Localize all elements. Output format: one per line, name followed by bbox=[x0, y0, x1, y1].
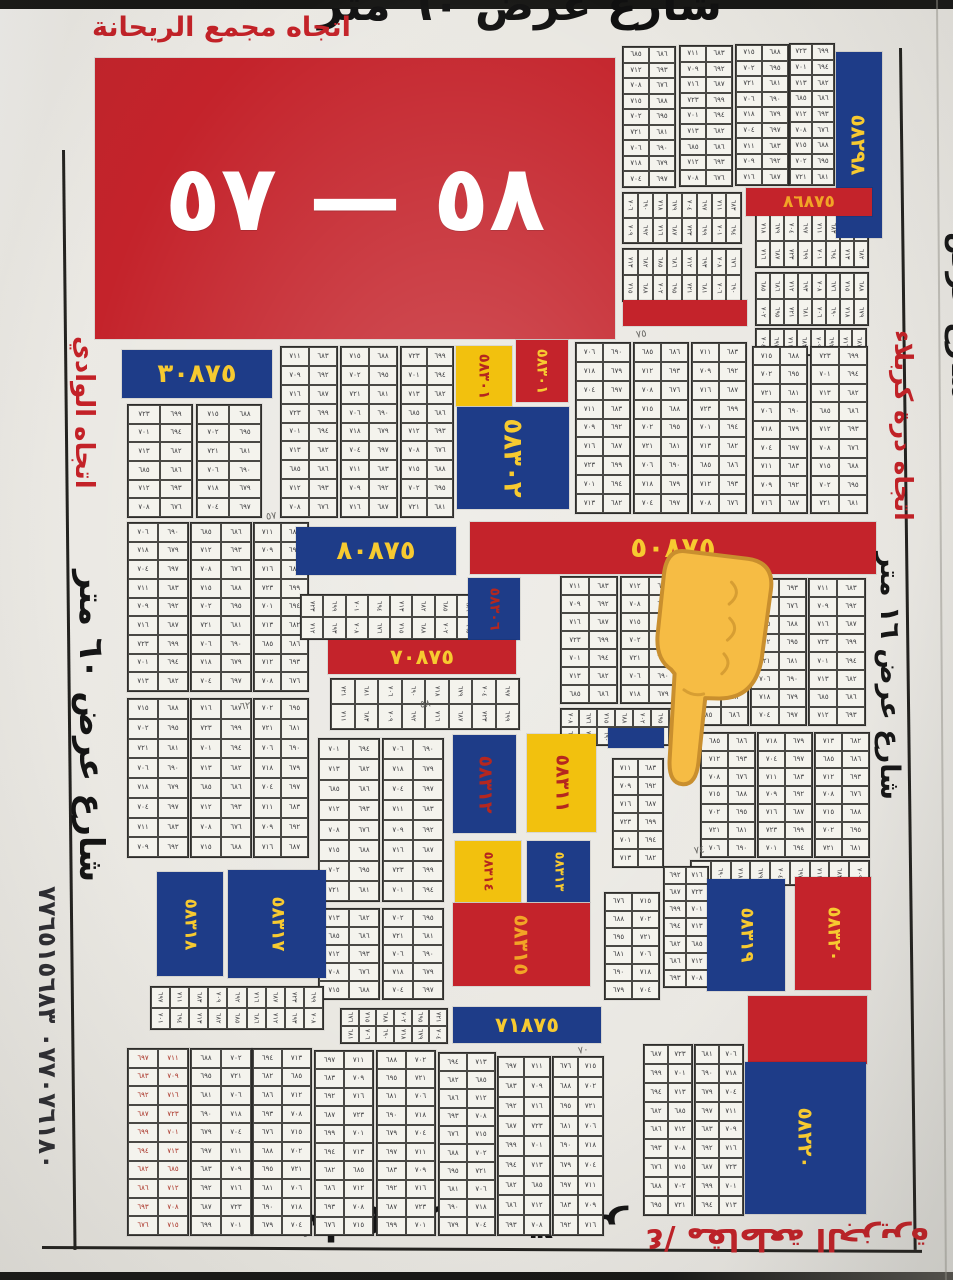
street-number-strip: ٣٠٨٧٥ bbox=[122, 350, 272, 398]
plot-cell: ٦٧٩ bbox=[553, 1156, 578, 1176]
plot-cell: ٦٩٠ bbox=[281, 739, 308, 759]
plot-cell: ٦٩٥ bbox=[439, 1162, 467, 1180]
plot-cell: ٦٧٩ bbox=[854, 299, 868, 325]
plot-cell: ٦٨٦ bbox=[839, 402, 867, 420]
plot-cell: ٦٧٩ bbox=[191, 1123, 221, 1142]
plot-cell: ٦٩٧ bbox=[649, 171, 675, 187]
plot-cell: ٦٧٩ bbox=[158, 542, 188, 561]
plot-cell: ٦٧٩ bbox=[785, 733, 812, 751]
plot-cell: ٧١٦ bbox=[561, 613, 589, 631]
plot-cell: ٧١٥ bbox=[341, 347, 369, 366]
plot-grid: ٧١٦٦٨٧٧٢٣٦٩٩٧٠١٦٩٤٧١٣٦٨٢٦٨٥٦٨٦٧١٢٦٩٣٧٠٨٦… bbox=[190, 698, 252, 858]
plot-cell: ٧١٥ bbox=[282, 1123, 311, 1142]
plot-cell: ٦٨٥ bbox=[319, 780, 349, 800]
photo-bottom-edge bbox=[0, 1272, 953, 1280]
plot-grid: ٧١١٦٨٣٧٠٩٦٩٢٧١٦٦٨٧٧٢٣٦٩٩٧٠١٦٩٤٧١٣٦٨٢٦٨٥٦… bbox=[808, 578, 866, 726]
plot-cell: ٧٠١ bbox=[576, 475, 603, 494]
plot-cell: ٧٠٢ bbox=[668, 1177, 692, 1196]
plot-cell: ٦٨٧ bbox=[266, 987, 285, 1008]
plot-cell: ٦٩٣ bbox=[427, 423, 453, 442]
plot-cell: ٦٨٧ bbox=[413, 840, 443, 860]
plot-cell: ٧٢١ bbox=[578, 1097, 603, 1117]
plot-cell: ٦٨٣ bbox=[158, 579, 188, 598]
plot-cell: ٧١٨ bbox=[576, 362, 603, 381]
plot-cell: ٦٨١ bbox=[661, 437, 688, 456]
plot-cell: ٦٩٧ bbox=[229, 498, 261, 517]
plot-cell: ٦٩٣ bbox=[160, 480, 192, 499]
plot-grid: ٦٧٦٧١٥٦٨٨٧٠٢٦٩٥٧٢١٦٨١٧٠٦٦٩٠٧١٨٦٧٩٧٠٤ bbox=[604, 892, 660, 1000]
plot-cell: ٦٨٨ bbox=[780, 347, 807, 365]
plot-cell: ٧١٣ bbox=[668, 1083, 692, 1102]
plot-cell: ٧٠٦ bbox=[406, 1088, 435, 1106]
plot-cell: ٧٠٩ bbox=[736, 154, 762, 170]
plot-cell: ٦٨١ bbox=[427, 498, 453, 517]
plot-cell: ٧١٥ bbox=[632, 893, 659, 911]
plot-cell: ٦٨٨ bbox=[253, 1142, 282, 1161]
plot-cell: ٧٢١ bbox=[467, 1162, 495, 1180]
plot-cell: ٦٩٣ bbox=[221, 798, 251, 818]
block-number-label: ٥٨٣١٣ bbox=[552, 852, 565, 892]
plot-cell: ٧٠١ bbox=[191, 739, 221, 759]
plot-cell: ٧١٣ bbox=[809, 670, 837, 688]
plot-cell: ٧١٥ bbox=[191, 579, 221, 598]
block-number-plate: ٥٨٣٠٦ bbox=[468, 578, 520, 640]
plot-cell: ٦٨٨ bbox=[427, 460, 453, 479]
plot-cell: ٧٠١ bbox=[790, 60, 812, 76]
plot-cell: ٧١٨ bbox=[753, 421, 780, 439]
plot-cell: ٧١٦ bbox=[191, 699, 221, 719]
plot-cell: ٦٨٢ bbox=[439, 1071, 467, 1089]
plot-cell: ٦٨١ bbox=[649, 125, 675, 141]
plot-cell: ٦٩٢ bbox=[377, 1180, 406, 1198]
plot-cell: ٧١٥ bbox=[344, 1217, 373, 1235]
plot-cell: ٦٩٠ bbox=[253, 1198, 282, 1217]
plot-cell: ٧١٦ bbox=[578, 1215, 603, 1235]
plot-cell: ٧٠٤ bbox=[282, 1216, 311, 1235]
plot-cell: ٧١٢ bbox=[623, 63, 649, 79]
plot-cell: ٦٩٥ bbox=[281, 699, 308, 719]
plot-cell: ٦٨٦ bbox=[812, 91, 834, 107]
plot-cell: ٦٩٤ bbox=[719, 419, 746, 438]
plot-cell: ٧٠٢ bbox=[634, 419, 661, 438]
plot-cell: ٦٧٦ bbox=[315, 1217, 344, 1235]
plot-cell: ٦٩٥ bbox=[349, 861, 379, 881]
plot-cell: ٧١٦ bbox=[524, 1097, 550, 1117]
plot-cell: ٧١٢ bbox=[281, 479, 309, 498]
plot-grid: ٧١٣٦٨٢٦٨٥٦٨٦٧١٢٦٩٣٧٠٨٦٧٦٧١٥٦٨٨٧٠٢٦٩٥٧٢١٦… bbox=[814, 732, 870, 858]
plot-cell: ٦٩٤ bbox=[160, 424, 192, 443]
block-number-label: ٥٨٣٠١ bbox=[535, 348, 550, 394]
plot-cell: ٦٨٦ bbox=[221, 778, 251, 798]
plot-cell: ٦٨٢ bbox=[603, 494, 630, 513]
plot-cell: ٦٨٧ bbox=[589, 613, 617, 631]
plot-cell: ٧٠٢ bbox=[653, 275, 668, 301]
plot-cell: ٦٩٣ bbox=[349, 945, 379, 963]
plot-grid: ٦٨٨٧٠٢٦٩٥٧٢١٦٨١٧٠٦٦٩٠٧١٨٦٧٩٧٠٤٦٩٧٧١١٦٨٣٧… bbox=[376, 1050, 436, 1236]
plot-cell: ٦٩٧ bbox=[151, 987, 170, 1008]
plot-cell: ٦٨٢ bbox=[638, 249, 653, 275]
plot-cell: ٧٢٣ bbox=[301, 595, 323, 617]
plot-cell: ٦٨٣ bbox=[315, 1069, 344, 1087]
colored-bar bbox=[748, 996, 867, 1064]
plot-cell: ٦٨٣ bbox=[785, 768, 812, 786]
plot-cell: ٧٢٣ bbox=[254, 579, 281, 598]
plot-cell: ٦٧٦ bbox=[826, 273, 840, 299]
plot-cell: ٦٩٤ bbox=[368, 595, 390, 617]
plot-cell: ٧٠٩ bbox=[128, 598, 158, 617]
plot-cell: ٧١٣ bbox=[467, 1053, 495, 1071]
plot-cell: ٧٠٨ bbox=[282, 1105, 311, 1124]
plot-cell: ٦٩٧ bbox=[780, 439, 807, 457]
plot-cell: ٧١٥ bbox=[319, 840, 349, 860]
plot-cell: ٦٩٩ bbox=[839, 347, 867, 365]
plot-cell: ٦٩٧ bbox=[158, 560, 188, 579]
plot-cell: ٦٩٥ bbox=[842, 822, 869, 840]
plot-cell: ٦٨٥ bbox=[344, 1161, 373, 1179]
plot-grid: ٦٩٧٧١١٦٨٣٧٠٩٦٩٢٧١٦٦٨٧٧٢٣٦٩٩٧٠١٦٩٤٧١٣٦٨٢٦… bbox=[497, 1056, 551, 1236]
plot-cell: ٧٠٤ bbox=[191, 672, 221, 691]
plot-cell: ٧٠٤ bbox=[221, 1123, 251, 1142]
plot-cell: ٧٠١ bbox=[383, 881, 413, 901]
plot-cell: ٧١٦ bbox=[158, 1086, 188, 1105]
phone-number: ٠٧٧٠٧٦١٨٠ ٧٧٦٥١٥٦٨٣ bbox=[35, 886, 60, 1169]
plot-cell: ٦٩٥ bbox=[667, 275, 682, 301]
plot-cell: ٦٧٩ bbox=[377, 1125, 406, 1143]
handwritten-mark: ٧٤ bbox=[693, 845, 705, 856]
plot-cell: ٧٠٤ bbox=[784, 215, 798, 241]
plot-cell: ٧١١ bbox=[344, 1051, 373, 1069]
plot-cell: ٦٩٤ bbox=[726, 218, 741, 243]
plot-cell: ٧٠١ bbox=[346, 595, 368, 617]
plot-cell: ٦٨٢ bbox=[160, 442, 192, 461]
plot-cell: ٧٠٨ bbox=[344, 1198, 373, 1216]
plot-cell: ٧٠٤ bbox=[341, 441, 369, 460]
plot-cell: ٦٨٧ bbox=[644, 1045, 668, 1064]
plot-cell: ٦٨٧ bbox=[664, 884, 686, 901]
plot-cell: ٦٧٦ bbox=[842, 786, 869, 804]
plot-cell: ٦٨٧ bbox=[762, 169, 788, 185]
block-number-plate: ٥٨٣٠١ bbox=[516, 340, 568, 402]
plot-cell: ٧٠١ bbox=[613, 831, 638, 849]
plot-cell: ٦٨٨ bbox=[369, 347, 397, 366]
plot-cell: ٦٧٦ bbox=[281, 672, 308, 691]
plot-cell: ٦٨٦ bbox=[661, 343, 688, 362]
plot-cell: ٦٨١ bbox=[439, 1180, 467, 1198]
plot-cell: ٧١١ bbox=[524, 1057, 550, 1077]
plot-cell: ٧٠٤ bbox=[429, 1026, 447, 1043]
plot-cell: ٧٠٩ bbox=[524, 1077, 550, 1097]
plot-cell: ٦٩٥ bbox=[229, 424, 261, 443]
plot-cell: ٧١١ bbox=[576, 400, 603, 419]
plot-cell: ٦٨٥ bbox=[811, 402, 839, 420]
plot-cell: ٦٧٦ bbox=[726, 249, 741, 275]
plot-grid: ٦٩٢٧١٦٦٨٧٧٢٣٦٩٩٧٠١٦٩٤٧١٣٦٨٢٦٨٥٦٨٦٧١٢٦٩٣٧… bbox=[663, 866, 709, 988]
plot-cell: ٦٨٨ bbox=[649, 94, 675, 110]
plot-grid: ٦٩٧٧١١٦٨٣٧٠٩٦٩٢٧١٦٦٨٧٧٢٣٦٩٩٧٠١٦٩٤٧١٣٦٨٢٦… bbox=[314, 1050, 374, 1236]
plot-cell: ٧٠٦ bbox=[383, 945, 413, 963]
plot-cell: ٦٩٣ bbox=[839, 421, 867, 439]
plot-cell: ٦٨٣ bbox=[309, 347, 337, 366]
plot-grid: ٧١١٦٨٣٧٠٩٦٩٢٧١٦٦٨٧٧٢٣٦٩٩٧٠١٦٩٤٧١٣٦٨٢٦٨٥٦… bbox=[679, 45, 733, 187]
plot-cell: ٧٢٣ bbox=[668, 1045, 692, 1064]
plot-cell: ٧٠٦ bbox=[576, 343, 603, 362]
plot-cell: ٧١٥ bbox=[668, 1158, 692, 1177]
plot-cell: ٦٨٦ bbox=[128, 1179, 158, 1198]
plot-cell: ٧٠٨ bbox=[686, 970, 708, 987]
plot-cell: ٧١٥ bbox=[623, 94, 649, 110]
plot-cell: ٧١١ bbox=[331, 704, 355, 729]
plot-cell: ٧٠٤ bbox=[682, 193, 697, 218]
plot-cell: ٧٠١ bbox=[758, 839, 785, 857]
plot-cell: ٦٩٤ bbox=[439, 1053, 467, 1071]
plot-cell: ٧١٨ bbox=[653, 193, 668, 218]
plot-cell: ٦٩٧ bbox=[281, 778, 308, 798]
plot-cell: ٧٠٨ bbox=[158, 1198, 188, 1217]
plot-cell: ٦٩٥ bbox=[770, 299, 784, 325]
plot-cell: ٦٩٧ bbox=[413, 780, 443, 800]
plot-cell: ٧٠٩ bbox=[281, 366, 309, 385]
plot-cell: ٧١٨ bbox=[341, 423, 369, 442]
plot-cell: ٦٨٢ bbox=[349, 909, 379, 927]
plot-cell: ٧٠٤ bbox=[578, 1156, 603, 1176]
block-number-plate: ٥٨٣١٤ bbox=[455, 841, 521, 902]
plot-cell: ٧٢١ bbox=[736, 76, 762, 92]
plot-cell: ٧٠٨ bbox=[281, 498, 309, 517]
plot-cell: ٦٧٩ bbox=[780, 421, 807, 439]
plot-cell: ٧٢٣ bbox=[344, 1106, 373, 1124]
plot-cell: ٧٢٣ bbox=[406, 1198, 435, 1216]
plot-cell: ٦٨٦ bbox=[349, 927, 379, 945]
plot-cell: ٧١٨ bbox=[128, 542, 158, 561]
plot-cell: ٦٨٣ bbox=[369, 460, 397, 479]
plot-cell: ٧٢٣ bbox=[401, 347, 427, 366]
plot-cell: ٦٨٥ bbox=[435, 595, 457, 617]
plot-cell: ٦٩٧ bbox=[785, 751, 812, 769]
plot-cell: ٧١١ bbox=[383, 800, 413, 820]
plot-cell: ٦٨٥ bbox=[191, 523, 221, 542]
plot-cell: ٧١١ bbox=[561, 577, 589, 595]
handwritten-mark: ٦٢ bbox=[239, 701, 251, 712]
plot-cell: ٦٨٨ bbox=[661, 400, 688, 419]
plot-cell: ٧٢٣ bbox=[613, 813, 638, 831]
plot-cell: ٧٠٨ bbox=[191, 560, 221, 579]
plot-cell: ٧٠٦ bbox=[736, 92, 762, 108]
plot-cell: ٦٩٧ bbox=[697, 193, 712, 218]
plot-cell: ٦٩٣ bbox=[323, 617, 345, 639]
plot-grid: ٦٩٧٧١١٦٨٣٧٠٩٦٩٢٧١٦٦٨٧٧٢٣٦٩٩٧٠١٦٩٤٧١٣٦٨٢٦… bbox=[127, 1048, 189, 1236]
plot-cell: ٦٨١ bbox=[355, 679, 379, 704]
block-number-label: ٥٨٣٢٠ bbox=[824, 906, 842, 961]
plot-cell: ٧١٢ bbox=[784, 273, 798, 299]
plot-cell: ٧٠٦ bbox=[634, 456, 661, 475]
plot-cell: ٦٨٨ bbox=[349, 981, 379, 999]
plot-cell: ٧٠١ bbox=[712, 218, 727, 243]
plot-cell: ٧٢١ bbox=[341, 385, 369, 404]
plot-grid: ٧٠٢٦٩٥٧٢١٦٨١٧٠٦٦٩٠٧١٨٦٧٩٧٠٤٦٩٧ bbox=[382, 908, 444, 1000]
plot-grid: ٦٨٥٦٨٦٧١٢٦٩٣٧٠٨٦٧٦٧١٥٦٨٨٧٠٢٦٩٥٧٢١٦٨١٧٠٦٦… bbox=[622, 46, 676, 188]
plot-cell: ٧٠١ bbox=[809, 652, 837, 670]
plot-cell: ٧١٨ bbox=[394, 1026, 412, 1043]
plot-cell: ٧٠٢ bbox=[191, 598, 221, 617]
plot-cell: ٦٩٥ bbox=[728, 804, 755, 822]
plot-cell: ٦٨١ bbox=[221, 616, 251, 635]
plot-cell: ٦٧٦ bbox=[649, 78, 675, 94]
plot-cell: ٧١٣ bbox=[282, 1049, 311, 1068]
direction-label-durrat-karbala: اتجاه درة كربلاء bbox=[891, 330, 916, 521]
plot-cell: ٦٨٣ bbox=[719, 343, 746, 362]
plot-cell: ٦٩٣ bbox=[837, 707, 865, 725]
plot-cell: ٧١١ bbox=[680, 46, 706, 62]
plot-cell: ٧١١ bbox=[719, 1102, 743, 1121]
plot-cell: ٧١٣ bbox=[686, 918, 708, 935]
plot-cell: ٦٩٤ bbox=[644, 1083, 668, 1102]
plot-cell: ٦٩٩ bbox=[160, 405, 192, 424]
sector-banner-label: ٥٨ — ٥٧ bbox=[165, 153, 546, 245]
plot-cell: ٦٨٨ bbox=[412, 617, 434, 639]
plot-cell: ٧١٥ bbox=[197, 405, 229, 424]
plot-cell: ٧١٦ bbox=[758, 804, 785, 822]
plot-cell: ٧١٣ bbox=[281, 441, 309, 460]
plot-cell: ٧٢٣ bbox=[128, 405, 160, 424]
plot-cell: ٦٧٦ bbox=[160, 498, 192, 517]
plot-cell: ٦٨٢ bbox=[221, 758, 251, 778]
plot-cell: ٦٩٧ bbox=[377, 1143, 406, 1161]
plot-cell: ٦٩٩ bbox=[785, 822, 812, 840]
plot-cell: ٦٩٥ bbox=[253, 1161, 282, 1180]
plot-grid: ٦٩٤٧١٣٦٨٢٦٨٥٦٨٦٧١٢٦٩٣٧٠٨٦٧٦٧١٥٦٨٨٧٠٢٦٩٥٧… bbox=[438, 1052, 496, 1236]
plot-cell: ٧٢١ bbox=[682, 275, 697, 301]
plot-cell: ٧٠٨ bbox=[524, 1215, 550, 1235]
plot-grid: ٦٩٤٧١٣٦٨٢٦٨٥٦٨٦٧١٢٦٩٣٧٠٨٦٧٦٧١٥٦٨٨٧٠٢٦٩٥٧… bbox=[252, 1048, 312, 1236]
plot-cell: ٦٩٤ bbox=[221, 739, 251, 759]
plot-cell: ٦٧٩ bbox=[603, 362, 630, 381]
plot-cell: ٧٠٢ bbox=[394, 1009, 412, 1026]
plot-cell: ٦٩٤ bbox=[695, 1196, 719, 1215]
plot-cell: ٦٩٢ bbox=[695, 1139, 719, 1158]
plot-cell: ٦٩٥ bbox=[221, 598, 251, 617]
plot-cell: ٦٩٥ bbox=[377, 1069, 406, 1087]
plot-cell: ٦٩٢ bbox=[369, 479, 397, 498]
direction-label-alwadi: اتجاه الوادي bbox=[71, 336, 97, 489]
plot-cell: ٦٩٠ bbox=[605, 964, 632, 982]
plot-cell: ٦٩٠ bbox=[377, 1106, 406, 1124]
block-number-label: ٣٠٨٧٥ bbox=[157, 361, 236, 387]
plot-cell: ٦٨٢ bbox=[158, 672, 188, 691]
plot-cell: ٧٠٢ bbox=[756, 299, 770, 325]
plot-cell: ٦٩٠ bbox=[695, 1064, 719, 1083]
plot-cell: ٧٠٦ bbox=[467, 1180, 495, 1198]
plot-cell: ٦٨١ bbox=[839, 495, 867, 513]
street-number-strip: ٧١٨٧٥ bbox=[453, 1007, 601, 1043]
plot-cell: ٧٠٢ bbox=[790, 154, 812, 170]
plot-cell: ٧١١ bbox=[736, 138, 762, 154]
plot-cell: ٧١١ bbox=[578, 1176, 603, 1196]
plot-cell: ٧٠٤ bbox=[197, 498, 229, 517]
plot-cell: ٧٠٩ bbox=[623, 218, 638, 243]
plot-cell: ٧٠٤ bbox=[758, 751, 785, 769]
plot-cell: ٦٩٧ bbox=[695, 1102, 719, 1121]
plot-cell: ٦٨١ bbox=[798, 299, 812, 325]
plot-cell: ٧١١ bbox=[158, 1049, 188, 1068]
plot-cell: ٧٢١ bbox=[623, 125, 649, 141]
street-label-top: شارع عرض ٦٠ متر bbox=[318, 0, 722, 31]
plot-cell: ٦٨٨ bbox=[349, 840, 379, 860]
plot-cell: ٧١٢ bbox=[680, 155, 706, 171]
plot-cell: ٦٨٨ bbox=[376, 1009, 394, 1026]
plot-cell: ٧٢٣ bbox=[281, 404, 309, 423]
plot-cell: ٦٩٤ bbox=[170, 1008, 189, 1029]
plot-cell: ٦٧٩ bbox=[253, 1216, 282, 1235]
plot-cell: ٦٩٢ bbox=[158, 837, 188, 857]
plot-cell: ٦٧٩ bbox=[695, 1083, 719, 1102]
plot-cell: ٧١٥ bbox=[811, 458, 839, 476]
plot-cell: ٧١٣ bbox=[189, 1008, 208, 1029]
plot-cell: ٧٠٤ bbox=[406, 1125, 435, 1143]
block-number-label: ٥٨٣٠٢ bbox=[500, 418, 526, 497]
plot-cell: ٧١٢ bbox=[815, 768, 842, 786]
plot-cell: ٧١٢ bbox=[809, 707, 837, 725]
plot-cell: ٦٧٩ bbox=[779, 689, 807, 707]
plot-cell: ٧١٦ bbox=[653, 218, 668, 243]
plot-cell: ٦٨٢ bbox=[498, 1176, 524, 1196]
plot-cell: ٧٠٢ bbox=[282, 1142, 311, 1161]
plot-cell: ٦٧٦ bbox=[605, 893, 632, 911]
plot-cell: ٦٨١ bbox=[369, 385, 397, 404]
plot-cell: ٧٠٢ bbox=[435, 617, 457, 639]
plot-cell: ٦٨٨ bbox=[229, 405, 261, 424]
handwritten-mark: ٥٧ bbox=[265, 511, 277, 522]
plot-cell: ٧١٨ bbox=[467, 1199, 495, 1217]
plot-cell: ٦٨٧ bbox=[315, 1106, 344, 1124]
plot-cell: ٦٩٩ bbox=[589, 631, 617, 649]
plot-cell: ٦٨٢ bbox=[842, 733, 869, 751]
plot-cell: ٧٠٨ bbox=[811, 439, 839, 457]
plot-cell: ٧٢٣ bbox=[790, 44, 812, 60]
plot-cell: ٦٩٩ bbox=[837, 634, 865, 652]
plot-cell: ٦٨٧ bbox=[719, 381, 746, 400]
plot-cell: ٦٩٤ bbox=[839, 365, 867, 383]
plot-cell: ٧١٣ bbox=[524, 1156, 550, 1176]
street-label-left-60m: شارع عرض ٦٠ متر bbox=[74, 570, 108, 882]
block-number-label: ٥٨٣١٤ bbox=[482, 852, 495, 892]
plot-cell: ٦٧٩ bbox=[439, 1217, 467, 1235]
plot-cell: ٧٢١ bbox=[191, 616, 221, 635]
plot-cell: ٧٠٨ bbox=[812, 273, 826, 299]
plot-cell: ٦٨٧ bbox=[498, 1116, 524, 1136]
plot-cell: ٧٠٩ bbox=[341, 479, 369, 498]
plot-cell: ٦٩٥ bbox=[812, 154, 834, 170]
street-number-strip: ٨٦٨٧٥ bbox=[746, 188, 872, 216]
plot-cell: ٦٨١ bbox=[553, 1116, 578, 1136]
plot-cell: ٦٨٧ bbox=[158, 616, 188, 635]
plot-grid: ٧٠٦٦٩٠٧١٨٦٧٩٧٠٤٦٩٧٧١١٦٨٣٧٠٩٦٩٢٧١٦٦٨٧٧٢٣٦… bbox=[622, 192, 742, 244]
plot-cell: ٦٩٠ bbox=[728, 839, 755, 857]
block-number-label: ٥٨٣١٧ bbox=[268, 897, 286, 952]
plot-cell: ٧١١ bbox=[281, 347, 309, 366]
plot-cell: ٦٨٦ bbox=[644, 1121, 668, 1140]
plot-cell: ٧١٣ bbox=[401, 385, 427, 404]
plot-cell: ٦٨٣ bbox=[603, 400, 630, 419]
plot-cell: ٧١٣ bbox=[840, 241, 854, 267]
block-number-label: ٧٠٨٧٥ bbox=[390, 647, 454, 668]
street-label-right-16m: شارع عرض ١٦ متر bbox=[876, 552, 903, 800]
plot-cell: ٦٩٤ bbox=[785, 839, 812, 857]
plot-cell: ٧١٣ bbox=[719, 1196, 743, 1215]
plot-cell: ٧٢١ bbox=[383, 927, 413, 945]
plot-cell: ٧١٣ bbox=[692, 437, 719, 456]
plot-cell: ٦٨١ bbox=[158, 739, 188, 759]
plot-cell: ٦٧٦ bbox=[661, 381, 688, 400]
